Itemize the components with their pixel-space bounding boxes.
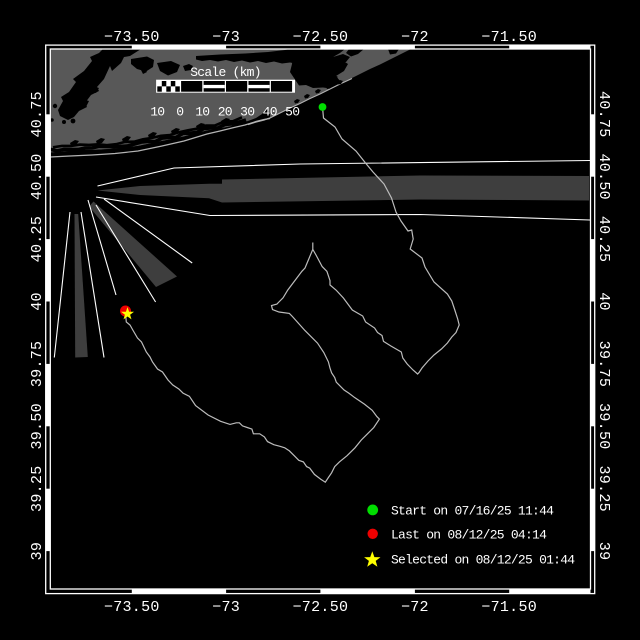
svg-text:−71.50: −71.50 [481, 599, 537, 616]
svg-text:10: 10 [195, 105, 209, 120]
svg-text:40.75: 40.75 [595, 91, 612, 138]
svg-text:−72.50: −72.50 [292, 599, 348, 616]
svg-text:40.50: 40.50 [595, 153, 612, 200]
svg-text:40: 40 [263, 105, 277, 120]
svg-text:40: 40 [595, 292, 612, 311]
svg-text:0: 0 [176, 105, 183, 120]
svg-text:40: 40 [29, 292, 46, 311]
svg-text:39.50: 39.50 [29, 403, 46, 450]
svg-text:Last on 08/12/25 04:14: Last on 08/12/25 04:14 [391, 528, 547, 543]
svg-text:39.75: 39.75 [595, 341, 612, 388]
svg-text:−73: −73 [212, 29, 240, 46]
svg-text:40.50: 40.50 [29, 153, 46, 200]
svg-text:40.25: 40.25 [595, 216, 612, 263]
svg-text:10: 10 [150, 105, 164, 120]
svg-text:−73.50: −73.50 [104, 29, 160, 46]
svg-text:−71.50: −71.50 [481, 29, 537, 46]
svg-text:20: 20 [218, 105, 232, 120]
svg-text:39.50: 39.50 [595, 403, 612, 450]
svg-text:39.25: 39.25 [29, 465, 46, 512]
svg-text:Scale (km): Scale (km) [190, 65, 261, 80]
svg-text:30: 30 [240, 105, 254, 120]
svg-text:Start on 07/16/25 11:44: Start on 07/16/25 11:44 [391, 503, 554, 518]
svg-text:40.25: 40.25 [29, 216, 46, 263]
svg-text:Selected on 08/12/25 01:44: Selected on 08/12/25 01:44 [391, 552, 575, 567]
svg-text:−73.50: −73.50 [104, 599, 160, 616]
svg-text:−72: −72 [401, 599, 429, 616]
svg-text:39.75: 39.75 [29, 341, 46, 388]
svg-text:−72.50: −72.50 [292, 29, 348, 46]
svg-text:39.25: 39.25 [595, 465, 612, 512]
svg-text:−72: −72 [401, 29, 429, 46]
svg-text:−73: −73 [212, 599, 240, 616]
svg-text:39: 39 [29, 542, 46, 561]
svg-text:40.75: 40.75 [29, 91, 46, 138]
svg-text:39: 39 [595, 542, 612, 561]
svg-text:50: 50 [285, 105, 299, 120]
